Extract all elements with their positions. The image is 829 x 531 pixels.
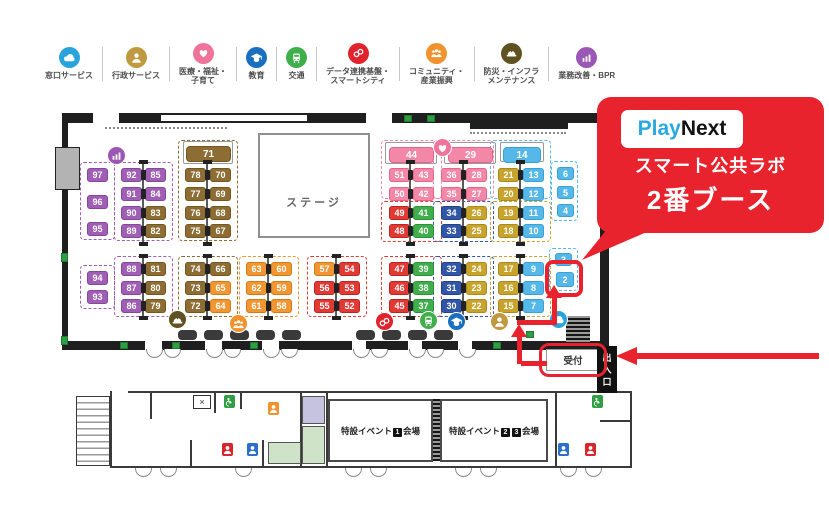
- heart-icon: [193, 43, 214, 64]
- map-rtable: [382, 330, 401, 340]
- map-ln: [214, 391, 216, 413]
- booth-72: 72: [185, 299, 206, 313]
- link-icon: [348, 43, 369, 64]
- legend-item-2: 行政サービス: [105, 47, 167, 81]
- partition-cap: [203, 254, 212, 258]
- partition-cap: [203, 316, 212, 320]
- map-arc: [206, 349, 223, 358]
- legend-divider: [102, 47, 103, 81]
- map-stairs: [76, 396, 110, 466]
- booth-connector: [408, 189, 413, 199]
- reception-highlight-outline: [539, 343, 607, 377]
- map-arc: [164, 349, 181, 358]
- booth-43: 43: [413, 168, 434, 182]
- booth-21: 21: [498, 168, 519, 182]
- booth-connector: [518, 301, 523, 311]
- booth-50: 50: [389, 187, 410, 201]
- partition-cap: [332, 254, 341, 258]
- booth-54: 54: [339, 262, 360, 276]
- partition-cap: [406, 242, 415, 246]
- booth-connector: [408, 208, 413, 218]
- booth-48: 48: [389, 224, 410, 238]
- legend-item-label: 医療・福祉・子育て: [179, 67, 227, 86]
- hall-1-number: 1: [393, 428, 402, 437]
- booth-57: 57: [314, 262, 335, 276]
- partition-cap: [459, 242, 468, 246]
- map-ln: [110, 391, 112, 468]
- map-arc: [560, 468, 577, 477]
- booth-connector: [518, 283, 523, 293]
- legend-divider: [399, 47, 400, 81]
- booth-63: 63: [246, 262, 267, 276]
- booth-53: 53: [339, 281, 360, 295]
- partition-cap: [459, 160, 468, 164]
- booth-75: 75: [185, 224, 206, 238]
- booth-91: 91: [121, 187, 142, 201]
- map-arc: [459, 349, 476, 358]
- booth-95: 95: [87, 222, 108, 236]
- booth-connector: [408, 264, 413, 274]
- map-gdoor: [172, 342, 180, 349]
- booth-connector: [461, 226, 466, 236]
- bousai-icon: [501, 43, 522, 64]
- booth-38: 38: [413, 281, 434, 295]
- booth-connector: [141, 170, 146, 180]
- booth-87: 87: [121, 281, 142, 295]
- partition-cap: [516, 160, 525, 164]
- route-segment-4: [552, 298, 557, 323]
- restroom-icon: [558, 443, 569, 456]
- booth-61: 61: [246, 299, 267, 313]
- map-arc: [370, 468, 387, 477]
- booth-connector: [141, 226, 146, 236]
- entrance-arrow-shaft: [637, 353, 819, 359]
- booth-connector: [518, 226, 523, 236]
- event-floor-map-flyer: 窓口サービス行政サービス医療・福祉・子育て教育交通データ連携基盤・スマートシティ…: [0, 0, 829, 531]
- bousai-icon: [168, 310, 187, 329]
- booth-connector: [141, 301, 146, 311]
- legend-item-3: 医療・福祉・子育て: [172, 43, 234, 86]
- booth-10: 10: [523, 224, 544, 238]
- route-arrowhead-2-icon: [546, 285, 562, 298]
- special-event-hall-2-3: 特設イベント23会場: [440, 399, 548, 462]
- booth-connector: [205, 301, 210, 311]
- cloud-icon: [59, 47, 80, 68]
- booth-5: 5: [557, 186, 574, 199]
- route-segment-1: [521, 361, 547, 366]
- booth-81: 81: [145, 262, 166, 276]
- train-icon: [419, 311, 438, 330]
- legend-divider: [236, 47, 237, 81]
- booth-connector: [518, 264, 523, 274]
- map-gdoor: [61, 253, 68, 262]
- map-roomgrn: [302, 426, 325, 464]
- map-arc: [263, 349, 280, 358]
- map-rtable: [256, 330, 275, 340]
- map-rtable: [434, 330, 453, 340]
- callout-lab-name: スマート公共ラボ: [597, 152, 824, 178]
- legend-divider: [316, 47, 317, 81]
- legend-item-7: コミュニティ・産業振興: [402, 43, 472, 86]
- map-gdoor: [61, 336, 68, 345]
- booth-connector: [266, 283, 271, 293]
- booth-connector: [408, 301, 413, 311]
- legend-divider: [169, 47, 170, 81]
- restroom-icon: [585, 443, 596, 456]
- map-rtable: [178, 330, 197, 340]
- booth-92: 92: [121, 168, 142, 182]
- map-rtable: [282, 330, 301, 340]
- map-ln: [630, 391, 632, 468]
- partition-cap: [203, 242, 212, 246]
- map-arc: [281, 349, 298, 358]
- route-segment-2: [517, 337, 522, 364]
- partition-cap: [516, 242, 525, 246]
- booth-17: 17: [498, 262, 519, 276]
- playnext-logo: PlayNext: [621, 110, 743, 148]
- community-icon: [229, 314, 248, 333]
- booth-96: 96: [87, 195, 108, 209]
- booth-76: 76: [185, 206, 206, 220]
- booth-connector: [461, 283, 466, 293]
- entrance-arrowhead-icon: [616, 347, 637, 365]
- booth-connector: [334, 283, 339, 293]
- booth-18: 18: [498, 224, 519, 238]
- booth-31: 31: [441, 281, 462, 295]
- booth-56: 56: [314, 281, 335, 295]
- booth-connector: [334, 264, 339, 274]
- map-gdoor: [526, 331, 534, 338]
- booth-79: 79: [145, 299, 166, 313]
- map-rtable: [408, 330, 427, 340]
- map-arc: [146, 349, 163, 358]
- booth-28: 28: [466, 168, 487, 182]
- booth-35: 35: [441, 187, 462, 201]
- booth-4: 4: [557, 204, 574, 217]
- booth-64: 64: [210, 299, 231, 313]
- legend-item-6: データ連携基盤・スマートシティ: [319, 43, 397, 86]
- map-gap: [366, 113, 392, 123]
- legend-item-9: 業務改善・BPR: [551, 47, 622, 81]
- partition-cap: [264, 254, 273, 258]
- booth-6: 6: [557, 167, 574, 180]
- booth-80: 80: [145, 281, 166, 295]
- booth-89: 89: [121, 224, 142, 238]
- booth-8: 8: [523, 281, 544, 295]
- partition-cap: [516, 254, 525, 258]
- legend-item-8: 防災・インフラメンテナンス: [477, 43, 547, 86]
- map-arc: [345, 468, 362, 477]
- partition-cap: [139, 242, 148, 246]
- booth-49: 49: [389, 206, 410, 220]
- booth-connector: [408, 283, 413, 293]
- booth-94: 94: [87, 271, 108, 285]
- link-icon: [375, 312, 394, 331]
- map-inset: [160, 114, 308, 122]
- map-hatch: [566, 316, 590, 344]
- hall-1-label: 特設イベント1会場: [341, 425, 420, 437]
- booth-connector: [408, 170, 413, 180]
- booth-70: 70: [210, 168, 231, 182]
- booth-55: 55: [314, 299, 335, 313]
- map-dot: [105, 127, 227, 132]
- booth-47: 47: [389, 262, 410, 276]
- map-dot: [470, 132, 566, 137]
- booth-36: 36: [441, 168, 462, 182]
- playnext-callout: PlayNext スマート公共ラボ 2番ブース: [597, 97, 824, 233]
- partition-cap: [139, 316, 148, 320]
- booth-83: 83: [145, 206, 166, 220]
- legend-item-5: 交通: [279, 47, 314, 81]
- partition-cap: [264, 316, 273, 320]
- booth-connector: [518, 189, 523, 199]
- map-arc: [455, 468, 472, 477]
- map-arc: [409, 349, 426, 358]
- stage-label: ステージ: [286, 194, 342, 210]
- booth-27: 27: [466, 187, 487, 201]
- booth-connector: [205, 226, 210, 236]
- accessible-icon: [224, 395, 235, 408]
- booth-20: 20: [498, 187, 519, 201]
- heart-icon: [433, 138, 452, 157]
- map-arc: [353, 349, 370, 358]
- legend-divider: [276, 47, 277, 81]
- booth-58: 58: [271, 299, 292, 313]
- restroom-icon: [247, 443, 258, 456]
- booth-59: 59: [271, 281, 292, 295]
- booth-42: 42: [413, 187, 434, 201]
- booth-connector: [461, 189, 466, 199]
- booth-19: 19: [498, 206, 519, 220]
- legend-item-label: データ連携基盤・スマートシティ: [326, 67, 390, 86]
- map-ln: [240, 391, 242, 409]
- map-roomgrn: [268, 442, 301, 464]
- stage: ステージ: [258, 133, 370, 238]
- booth-73: 73: [185, 281, 206, 295]
- booth-60: 60: [271, 262, 292, 276]
- map-arc: [160, 468, 177, 477]
- booth-connector: [205, 264, 210, 274]
- booth-connector: [408, 226, 413, 236]
- booth-connector: [461, 301, 466, 311]
- train-icon: [286, 47, 307, 68]
- booth-connector: [141, 189, 146, 199]
- legend-item-label: コミュニティ・産業振興: [409, 67, 465, 86]
- booth-connector: [266, 301, 271, 311]
- booth-77: 77: [185, 187, 206, 201]
- map-gap: [93, 113, 119, 123]
- booth-85: 85: [145, 168, 166, 182]
- map-ln: [600, 420, 630, 422]
- booth-connector: [205, 189, 210, 199]
- booth-9: 9: [523, 262, 544, 276]
- partition-cap: [139, 160, 148, 164]
- booth-25: 25: [466, 224, 487, 238]
- booth-connector: [205, 283, 210, 293]
- booth-82: 82: [145, 224, 166, 238]
- partition-cap: [406, 316, 415, 320]
- booth-26: 26: [466, 206, 487, 220]
- booth-29: 29: [448, 147, 493, 163]
- map-arc: [585, 468, 602, 477]
- map-gdoor: [250, 342, 258, 349]
- map-arc: [135, 468, 152, 477]
- booth-connector: [518, 170, 523, 180]
- booth-34: 34: [441, 206, 462, 220]
- community-icon: [426, 43, 447, 64]
- restroom-icon: [222, 443, 233, 456]
- map-arc: [427, 349, 444, 358]
- callout-booth-number: 2番ブース: [597, 180, 824, 217]
- map-rtable: [204, 330, 223, 340]
- booth-connector: [461, 208, 466, 218]
- booth-connector: [205, 170, 210, 180]
- booth-45: 45: [389, 299, 410, 313]
- map-gdoor: [427, 115, 435, 122]
- map-arc: [235, 468, 252, 477]
- booth-69: 69: [210, 187, 231, 201]
- legend-item-label: 教育: [249, 71, 265, 81]
- booth-46: 46: [389, 281, 410, 295]
- booth-66: 66: [210, 262, 231, 276]
- map-rtable: [356, 330, 375, 340]
- booth-39: 39: [413, 262, 434, 276]
- booth-68: 68: [210, 206, 231, 220]
- booth-30: 30: [441, 299, 462, 313]
- booth-12: 12: [523, 187, 544, 201]
- booth-13: 13: [523, 168, 544, 182]
- map-ln: [555, 391, 557, 468]
- hall-2-number: 2: [501, 428, 510, 437]
- map-arc: [224, 349, 241, 358]
- bpr-icon: [107, 146, 126, 165]
- booth-11: 11: [523, 206, 544, 220]
- booth-24: 24: [466, 262, 487, 276]
- booth-connector: [334, 301, 339, 311]
- legend-item-label: 業務改善・BPR: [558, 71, 615, 81]
- route-arrowhead-1-icon: [511, 324, 527, 337]
- booth-97: 97: [87, 168, 108, 182]
- booth-52: 52: [339, 299, 360, 313]
- accessible-icon: [592, 395, 603, 408]
- hall-2-3-label: 特設イベント23会場: [449, 425, 539, 437]
- booth-33: 33: [441, 224, 462, 238]
- partition-cap: [406, 160, 415, 164]
- map-gdoor: [404, 115, 412, 122]
- booth-84: 84: [145, 187, 166, 201]
- legend-item-label: 行政サービス: [112, 71, 160, 81]
- map-arc: [480, 468, 497, 477]
- restroom-icon: [268, 402, 279, 415]
- partition-cap: [139, 254, 148, 258]
- booth-90: 90: [121, 206, 142, 220]
- map-arc: [371, 349, 388, 358]
- map-ln: [150, 391, 152, 419]
- booth-51: 51: [389, 168, 410, 182]
- edu-icon: [246, 47, 267, 68]
- hall-3-number: 3: [512, 428, 521, 437]
- booth-15: 15: [498, 299, 519, 313]
- map-graydoor: [55, 147, 80, 190]
- map-ln: [190, 440, 192, 468]
- legend-item-4: 教育: [239, 47, 274, 81]
- booth-86: 86: [121, 299, 142, 313]
- booth-connector: [141, 264, 146, 274]
- booth-7: 7: [523, 299, 544, 313]
- map-gdoor: [493, 342, 501, 349]
- map-wall: [470, 122, 568, 129]
- booth-65: 65: [210, 281, 231, 295]
- booth-62: 62: [246, 281, 267, 295]
- booth-connector: [461, 264, 466, 274]
- partition-cap: [459, 254, 468, 258]
- booth-connector: [461, 170, 466, 180]
- map-gdoor: [120, 342, 128, 349]
- person-icon: [126, 47, 147, 68]
- partition-cap: [332, 316, 341, 320]
- person-icon: [490, 312, 509, 331]
- booth-93: 93: [87, 290, 108, 304]
- legend-divider: [548, 47, 549, 81]
- legend-item-label: 防災・インフラメンテナンス: [484, 67, 540, 86]
- legend-item-label: 交通: [289, 71, 305, 81]
- route-segment-3: [517, 320, 557, 325]
- category-legend: 窓口サービス行政サービス医療・福祉・子育て教育交通データ連携基盤・スマートシティ…: [38, 40, 622, 88]
- map-elev: ×: [193, 395, 211, 409]
- booth-connector: [518, 208, 523, 218]
- partition-cap: [406, 254, 415, 258]
- booth-67: 67: [210, 224, 231, 238]
- booth-connector: [266, 264, 271, 274]
- booth-16: 16: [498, 281, 519, 295]
- booth-41: 41: [413, 206, 434, 220]
- legend-item-1: 窓口サービス: [38, 47, 100, 81]
- booth-22: 22: [466, 299, 487, 313]
- playnext-logo-text: PlayNext: [638, 117, 727, 141]
- booth-74: 74: [185, 262, 206, 276]
- map-ln: [262, 440, 264, 468]
- map-roomlav: [302, 396, 325, 424]
- special-event-hall-1: 特設イベント1会場: [328, 399, 433, 462]
- booth-32: 32: [441, 262, 462, 276]
- legend-item-label: 窓口サービス: [45, 71, 93, 81]
- booth-23: 23: [466, 281, 487, 295]
- booth-78: 78: [185, 168, 206, 182]
- edu-icon: [447, 312, 466, 331]
- booth-connector: [205, 208, 210, 218]
- bpr-icon: [576, 47, 597, 68]
- booth-connector: [141, 283, 146, 293]
- partition-cap: [203, 160, 212, 164]
- booth-40: 40: [413, 224, 434, 238]
- booth-88: 88: [121, 262, 142, 276]
- booth-connector: [141, 208, 146, 218]
- legend-divider: [474, 47, 475, 81]
